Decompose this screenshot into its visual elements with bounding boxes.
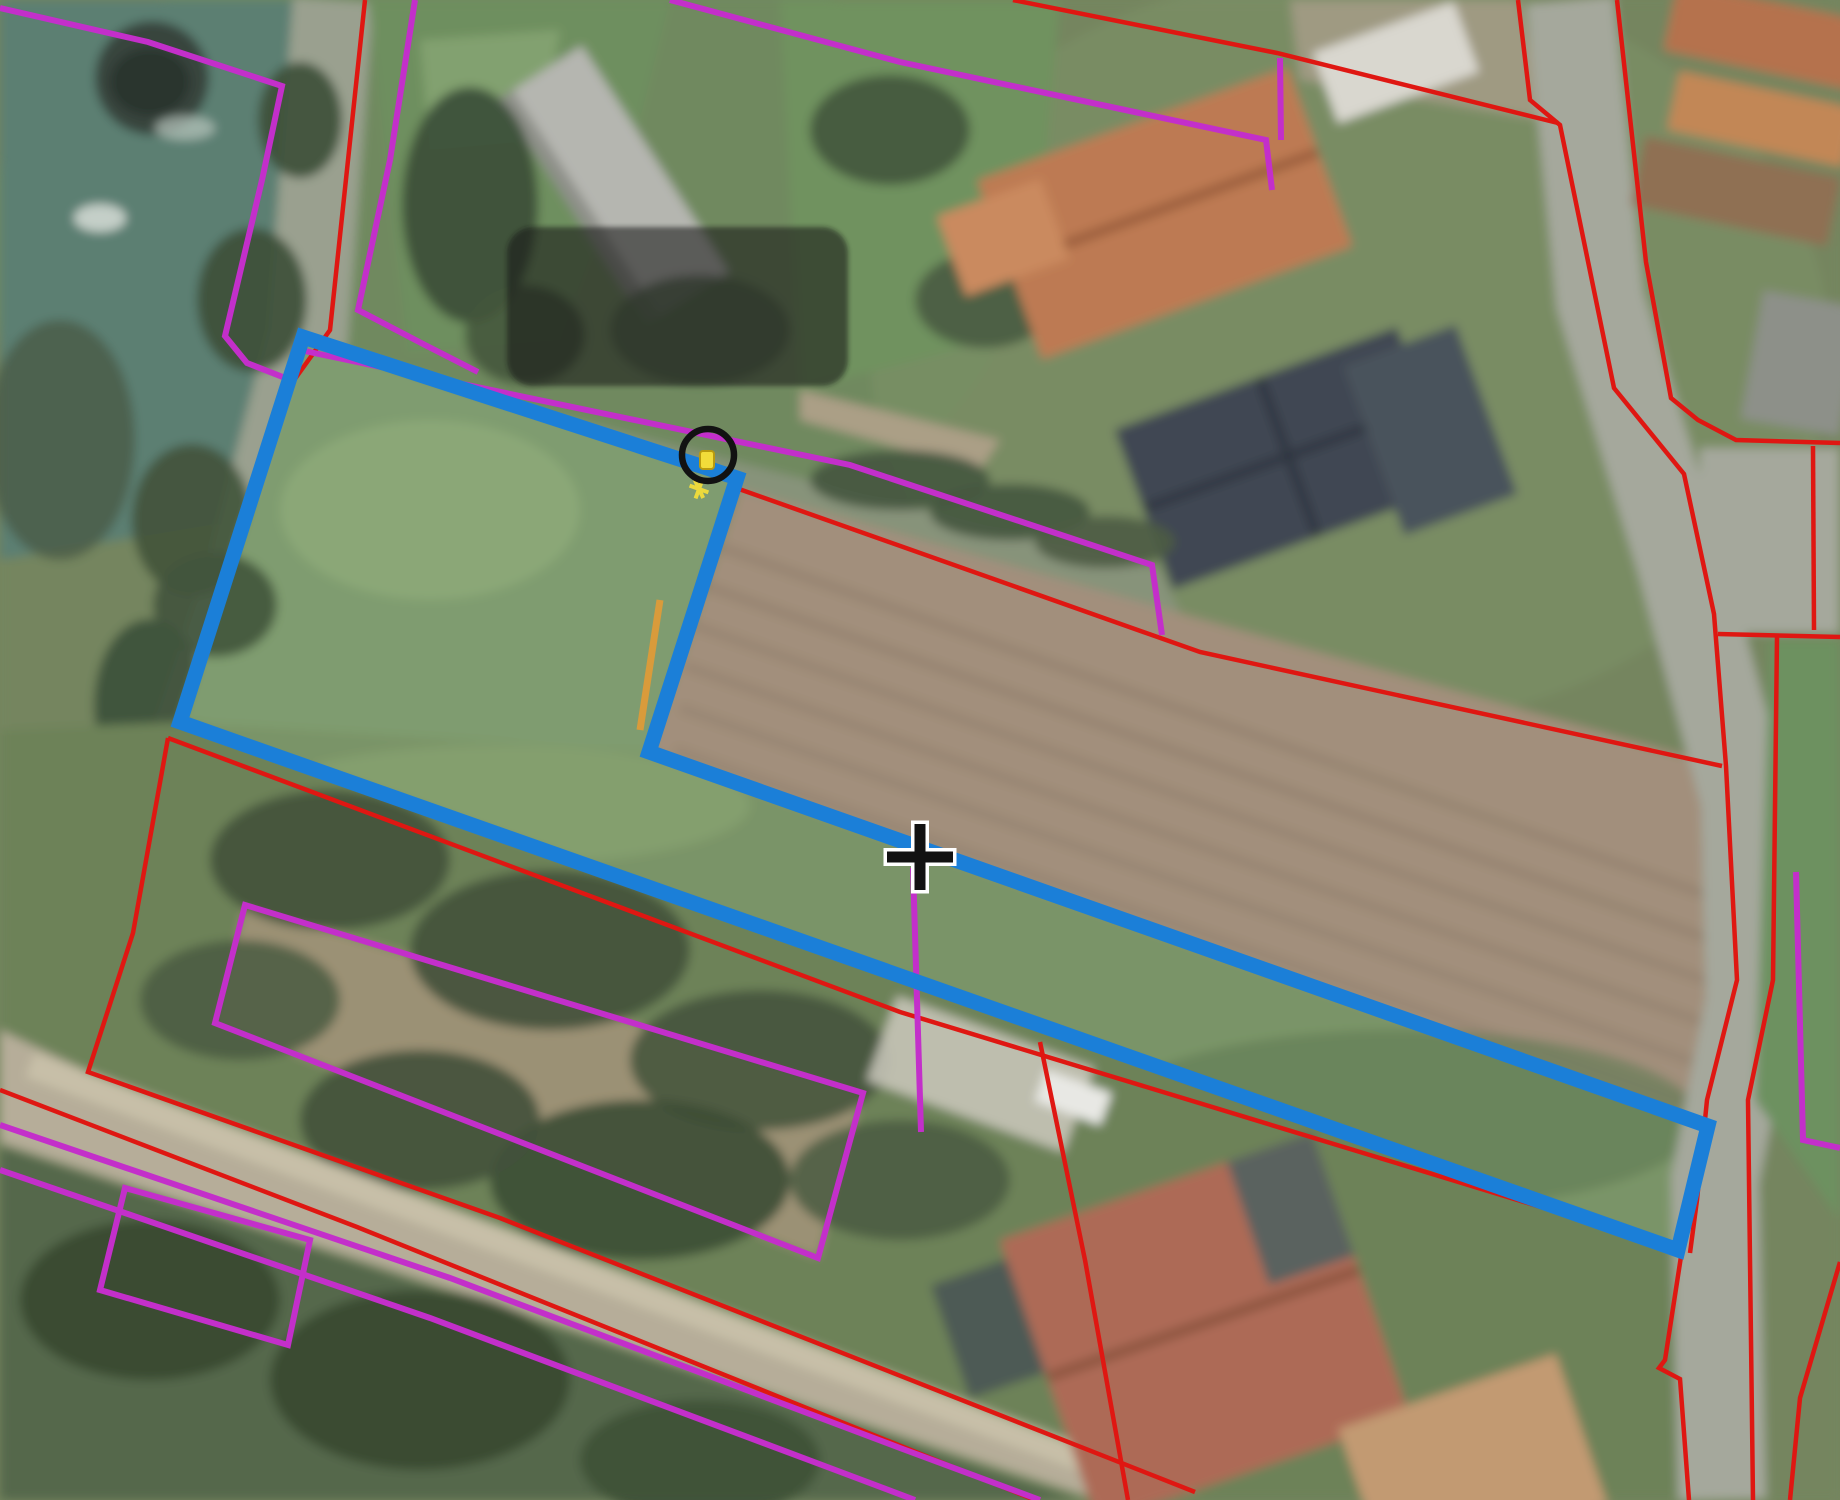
tree bbox=[197, 228, 307, 372]
side-drive bbox=[1700, 448, 1840, 633]
map-canvas[interactable] bbox=[0, 0, 1840, 1500]
terrain-white-blob bbox=[74, 204, 126, 232]
grass-light bbox=[280, 420, 580, 600]
redaction-layer bbox=[507, 227, 848, 386]
water-tank-inner bbox=[110, 48, 190, 116]
terrain-white-blob bbox=[155, 116, 215, 140]
tree-mass bbox=[790, 1120, 1010, 1240]
tree-row bbox=[1035, 516, 1175, 568]
point-pin-icon bbox=[700, 451, 714, 469]
magenta-parcel-line bbox=[1280, 58, 1281, 140]
crosshair-icon bbox=[887, 852, 953, 863]
redaction-overlay bbox=[507, 227, 848, 386]
red-parcel-line bbox=[1813, 446, 1814, 630]
map-viewport[interactable] bbox=[0, 0, 1840, 1500]
tree-mass bbox=[20, 1220, 280, 1380]
tree bbox=[810, 75, 970, 185]
tree-mass bbox=[140, 940, 340, 1060]
